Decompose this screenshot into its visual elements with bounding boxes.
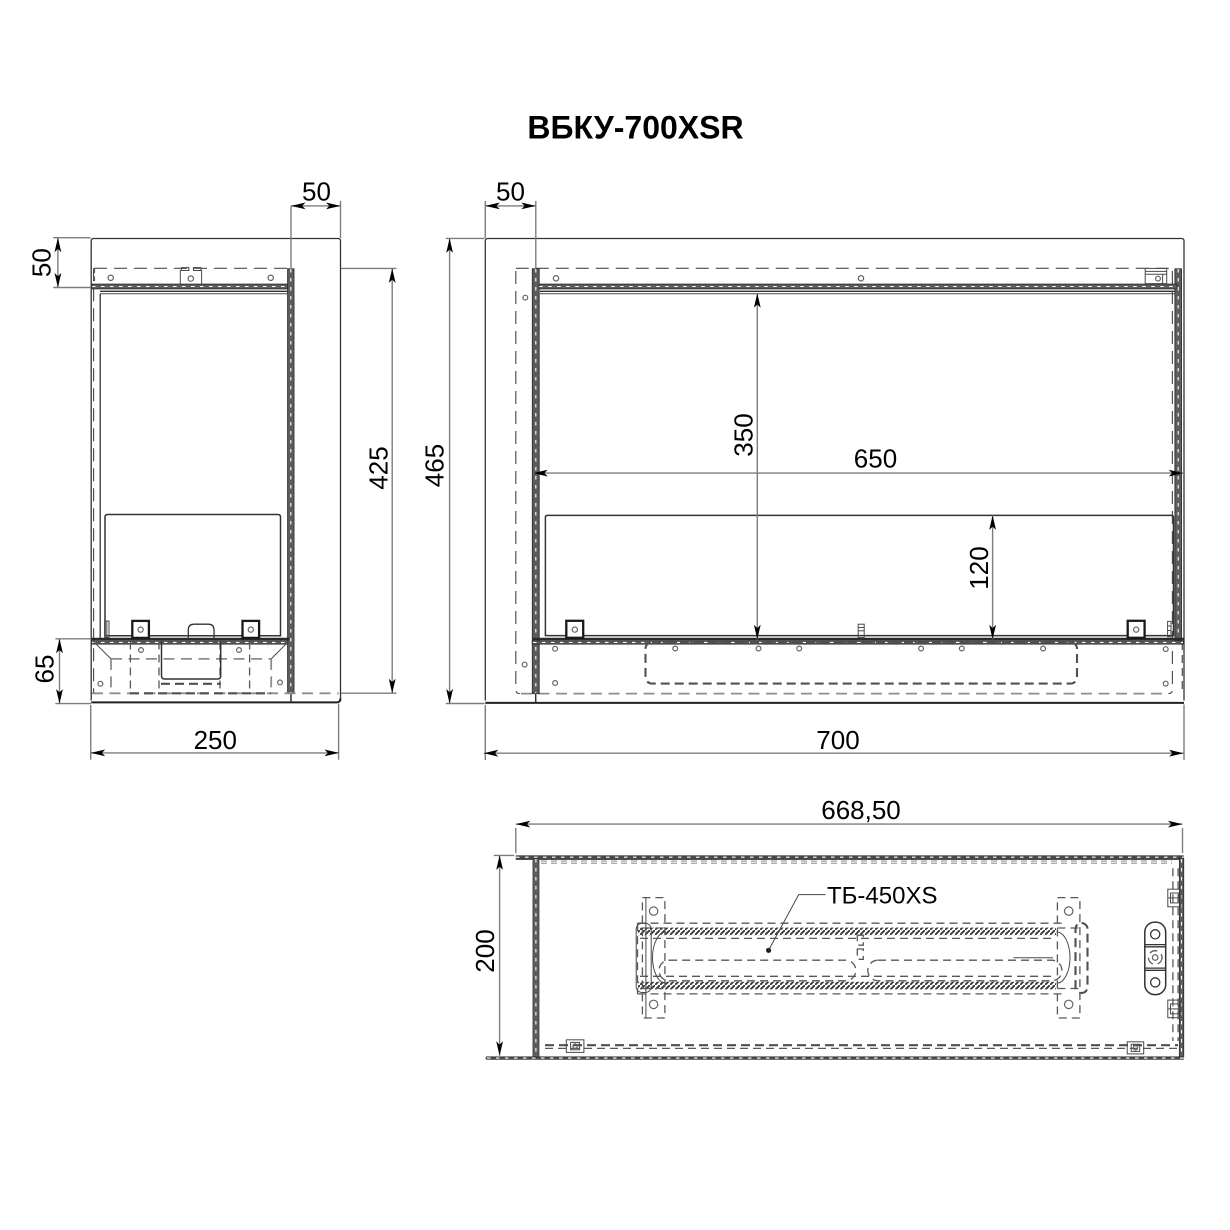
svg-text:ТБ-450XS: ТБ-450XS: [827, 883, 937, 910]
svg-text:200: 200: [470, 929, 500, 972]
svg-text:425: 425: [364, 446, 394, 489]
svg-text:50: 50: [27, 248, 57, 277]
svg-text:250: 250: [194, 725, 237, 755]
svg-text:350: 350: [729, 413, 759, 456]
svg-text:668,50: 668,50: [821, 795, 901, 825]
svg-text:50: 50: [302, 177, 331, 207]
svg-text:120: 120: [964, 546, 994, 589]
svg-text:650: 650: [854, 443, 897, 473]
svg-text:65: 65: [30, 655, 60, 684]
svg-text:700: 700: [816, 725, 859, 755]
svg-text:465: 465: [420, 444, 450, 487]
svg-text:50: 50: [496, 177, 525, 207]
svg-text:ВБКУ-700XSR: ВБКУ-700XSR: [527, 110, 743, 146]
